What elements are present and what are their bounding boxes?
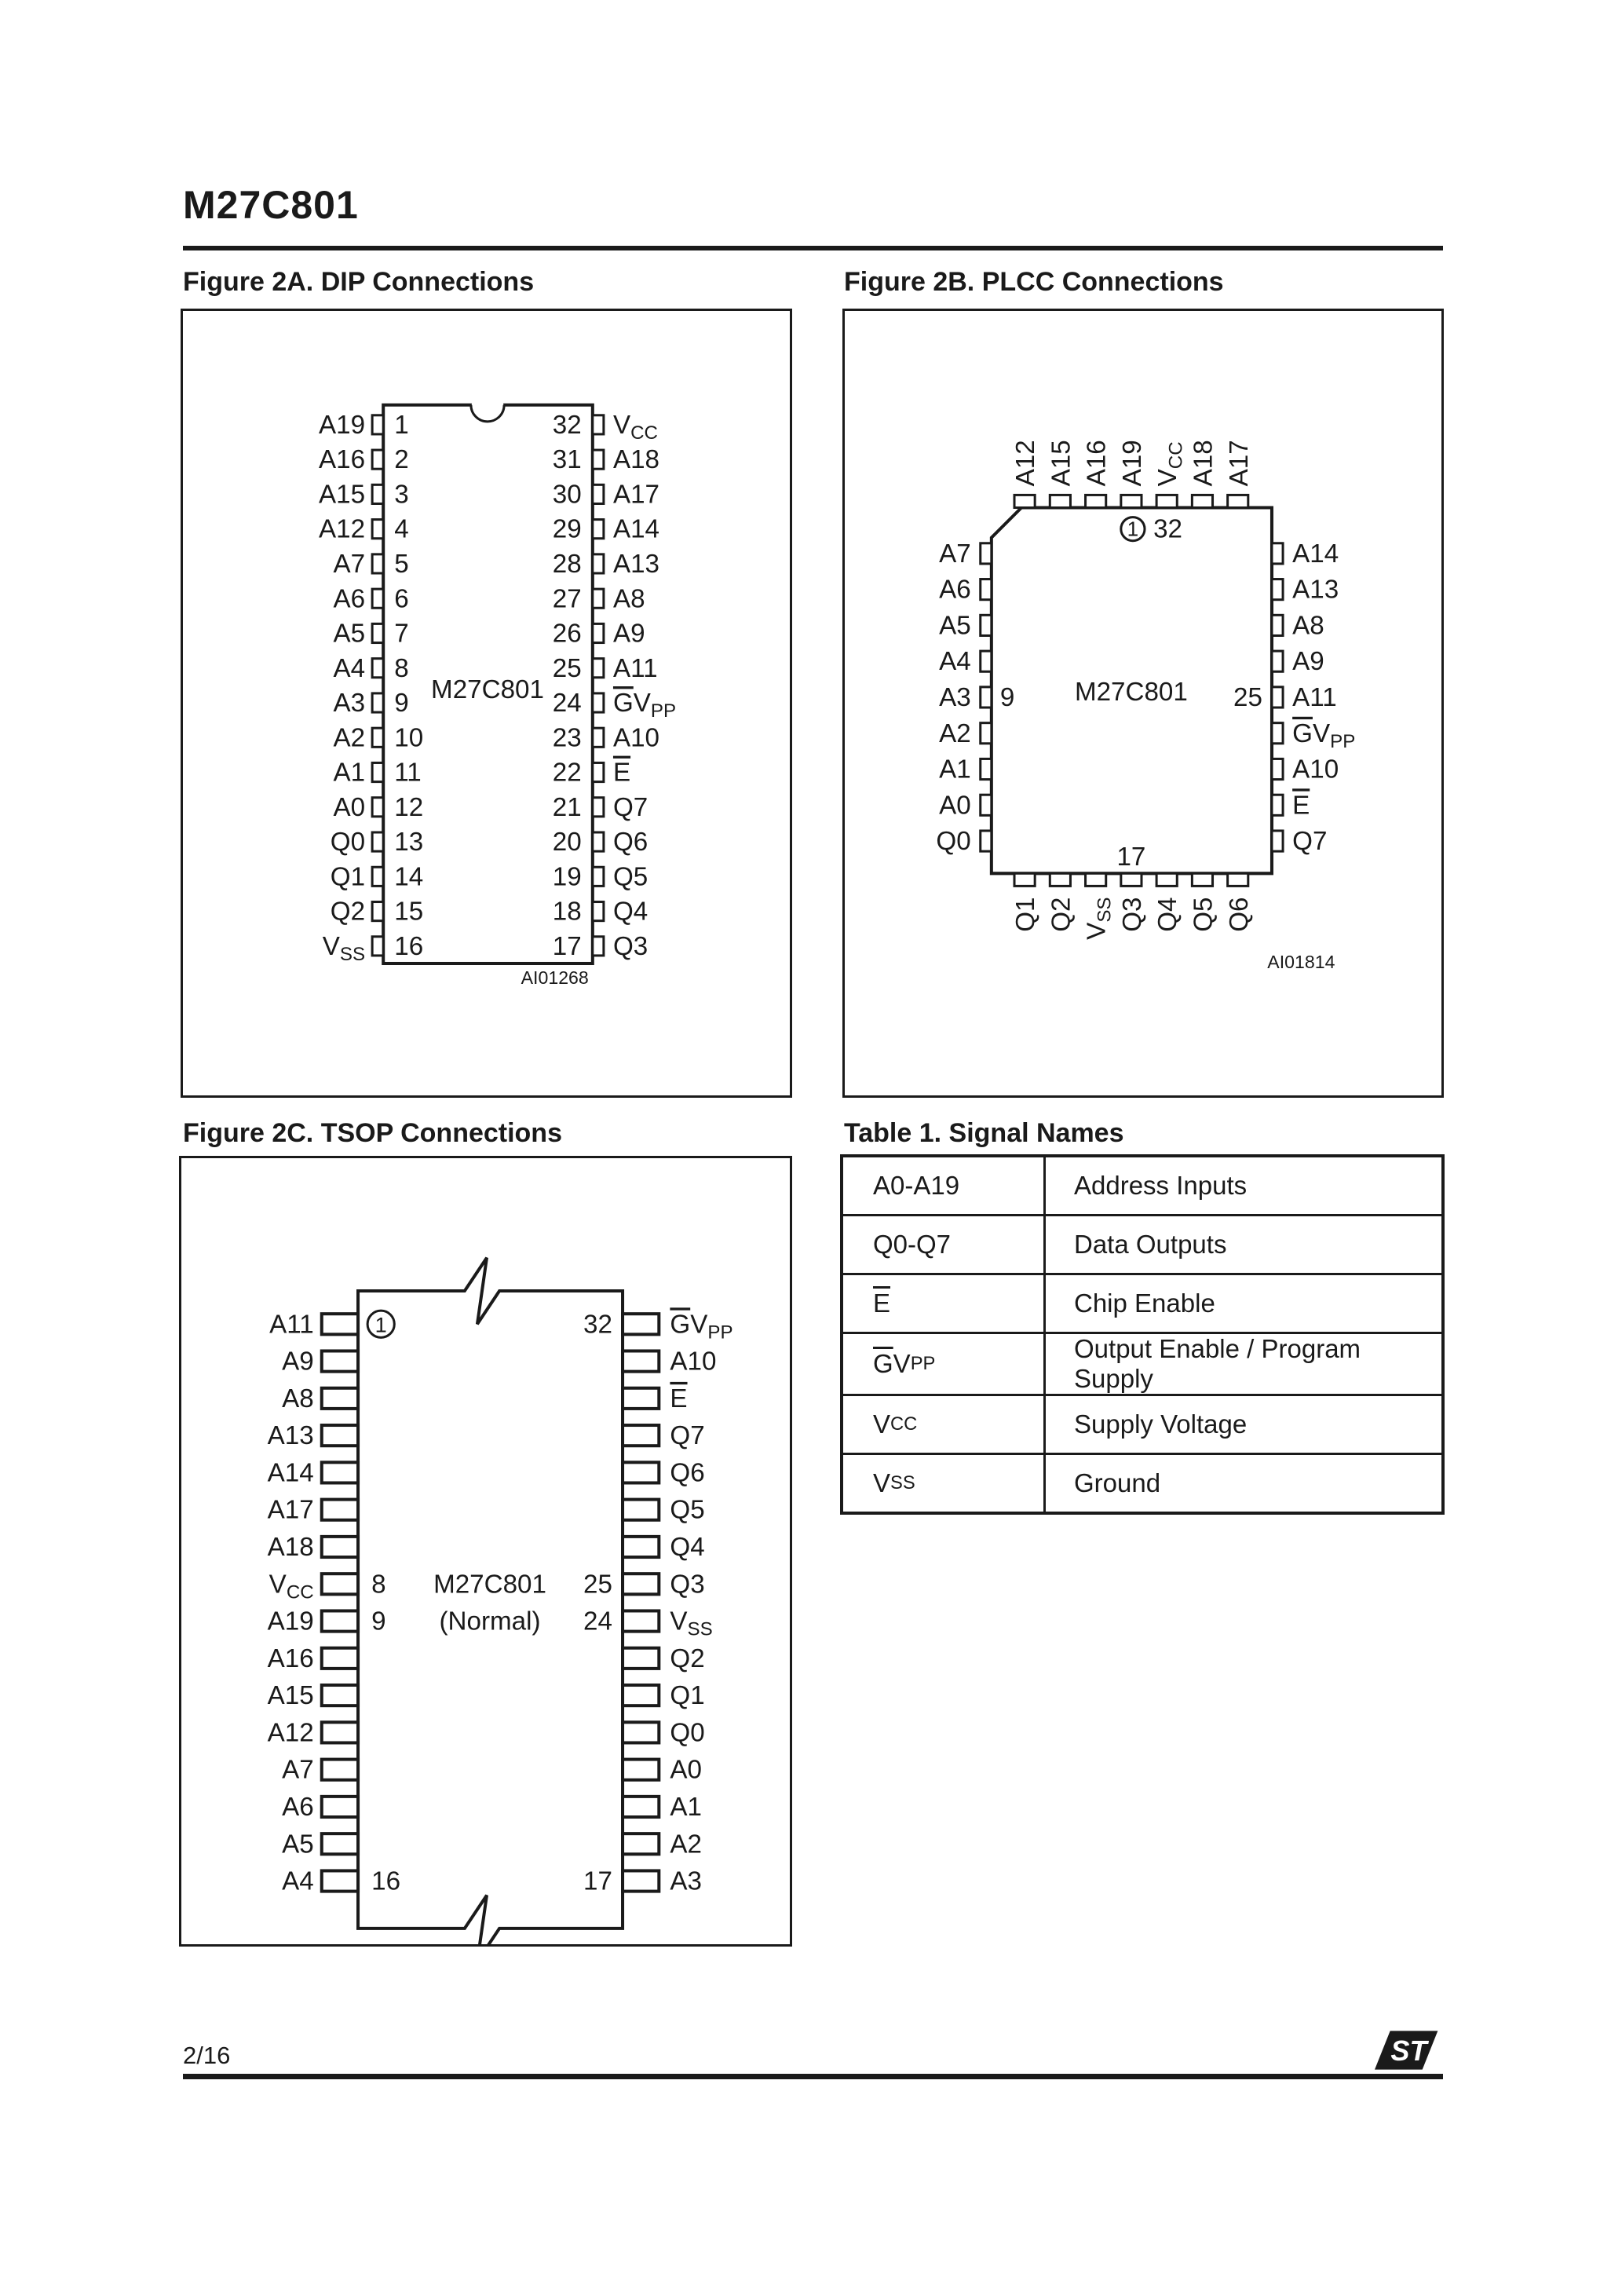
label-part: Q4 xyxy=(1153,897,1182,931)
pin-stub-icon xyxy=(981,651,992,671)
pin-label: Q7 xyxy=(670,1421,704,1450)
label-part: A18 xyxy=(613,445,659,474)
label-part: 25 xyxy=(553,654,582,683)
pin-stub-icon xyxy=(372,762,383,781)
pin-stub-icon xyxy=(1272,579,1283,600)
label-part: 24 xyxy=(583,1607,612,1636)
pin-stub-icon xyxy=(593,450,604,469)
label-part: 8 xyxy=(394,654,408,683)
figure-2b-title: Figure 2B. PLCC Connections xyxy=(844,267,1224,298)
pin-label: Q2 xyxy=(331,898,365,927)
label-part: V xyxy=(634,689,651,718)
label-part: 14 xyxy=(394,862,423,891)
header-rule xyxy=(183,246,1443,250)
pin-stub-icon xyxy=(1272,543,1283,564)
st-logo-text: ST xyxy=(1390,2035,1429,2067)
pin-stub-icon xyxy=(322,1388,358,1409)
label-part: 7 xyxy=(394,620,408,649)
pin-label: A14 xyxy=(268,1458,314,1487)
label-part: Q0 xyxy=(670,1718,704,1747)
pin-stub-icon xyxy=(1050,495,1070,507)
label-part: A5 xyxy=(333,620,365,649)
label-part: A2 xyxy=(333,723,365,752)
signal-description-cell: Address Inputs xyxy=(1046,1157,1441,1214)
pin-stub-icon xyxy=(593,659,604,678)
label-part: Q4 xyxy=(613,898,648,927)
label-part: A12 xyxy=(268,1718,314,1747)
label-part: A3 xyxy=(670,1867,702,1896)
pin-number: 25 xyxy=(1233,683,1262,712)
label-part: A12 xyxy=(1011,440,1040,486)
label-part: 28 xyxy=(553,550,582,579)
pin-label: Q6 xyxy=(613,828,648,857)
pin-number: 32 xyxy=(553,411,582,440)
plcc-diagram: A12A15A16A19VCCA18A17Q1Q2VSSQ3Q4Q5Q6A7A6… xyxy=(845,311,1441,1095)
pin-number: 27 xyxy=(553,584,582,613)
label-part: V xyxy=(1313,719,1330,748)
label-part: A19 xyxy=(1118,440,1147,486)
pin-label: A9 xyxy=(282,1347,314,1377)
pin-number: 17 xyxy=(553,932,582,961)
pin-label: A2 xyxy=(670,1830,702,1859)
label-part: 27 xyxy=(553,584,582,613)
label-part: A16 xyxy=(268,1644,314,1673)
pin-stub-icon xyxy=(372,867,383,886)
label-part: Q1 xyxy=(670,1681,704,1710)
pin-label: A8 xyxy=(282,1384,314,1413)
pin-label: A11 xyxy=(269,1310,314,1339)
figure-2c-box: A11A9A8A13A14A17A18VCCA19A16A15A12A7A6A5… xyxy=(179,1156,792,1947)
pin-number: 10 xyxy=(394,723,423,752)
pin-stub-icon xyxy=(593,867,604,886)
label-part: A17 xyxy=(613,480,659,509)
pin-number: 30 xyxy=(553,480,582,509)
label-part: 16 xyxy=(394,932,423,961)
pin-number: 17 xyxy=(1116,843,1145,872)
pin-number: 25 xyxy=(583,1570,612,1599)
label-part: SS xyxy=(340,944,365,965)
label-part: Q6 xyxy=(1225,897,1254,931)
label-part: A11 xyxy=(269,1310,314,1339)
pin-stub-icon xyxy=(1272,759,1283,779)
pin-label: Q1 xyxy=(331,862,365,891)
label-part: A15 xyxy=(1047,440,1076,486)
pin-number: 13 xyxy=(394,828,423,857)
label-part: 24 xyxy=(553,689,582,718)
pin-label: GVPP xyxy=(613,689,676,722)
pin-stub-icon xyxy=(372,659,383,678)
pin-label: A17 xyxy=(268,1496,314,1525)
pin-label: A13 xyxy=(268,1421,314,1450)
pin-stub-icon xyxy=(1156,873,1177,886)
label-part: V xyxy=(1083,923,1112,940)
label-part: M27C801 xyxy=(1075,678,1188,707)
label-part: A10 xyxy=(613,723,659,752)
label-part: V xyxy=(690,1310,707,1339)
label-part: A5 xyxy=(939,611,971,640)
label-part: Q3 xyxy=(670,1570,704,1599)
pin-label: VCC xyxy=(613,411,658,444)
st-logo: ST xyxy=(1375,2028,1439,2072)
chip-body xyxy=(358,1258,623,1944)
label-part: E xyxy=(613,759,630,788)
pin-label: Q0 xyxy=(936,827,970,856)
label-part: A9 xyxy=(613,620,645,649)
pin-number: 16 xyxy=(394,932,423,961)
label-part: A13 xyxy=(268,1421,314,1450)
pin-label: A15 xyxy=(319,480,365,509)
chip-label: M27C801 xyxy=(431,675,544,704)
label-part: Q0 xyxy=(936,827,970,856)
pin-label: A11 xyxy=(1292,683,1337,712)
pin-stub-icon xyxy=(322,1351,358,1371)
pin-number: 31 xyxy=(553,445,582,474)
pin-stub-icon xyxy=(322,1648,358,1669)
label-part: 11 xyxy=(394,759,421,788)
label-part: 32 xyxy=(553,411,582,440)
label-part: A8 xyxy=(613,584,645,613)
pin-stub-icon xyxy=(1121,873,1142,886)
datasheet-page: { "page": { "title": "M27C801", "page_nu… xyxy=(0,0,1622,2296)
pin-number: 17 xyxy=(583,1867,612,1896)
label-part: AI01814 xyxy=(1267,952,1335,972)
pin-number: 4 xyxy=(394,515,408,544)
table-row: Q0-Q7Data Outputs xyxy=(843,1214,1441,1273)
label-part: A16 xyxy=(319,445,365,474)
pin-stub-icon xyxy=(1156,495,1177,507)
label-part: 3 xyxy=(394,480,408,509)
pin-label: Q5 xyxy=(613,862,648,891)
signal-description-cell: Ground xyxy=(1046,1455,1441,1512)
signal-description-cell: Data Outputs xyxy=(1046,1216,1441,1273)
pin-number: 2 xyxy=(394,445,408,474)
pin-label: GVPP xyxy=(670,1310,732,1343)
label-part: V xyxy=(323,932,340,961)
pin-number: 24 xyxy=(553,689,582,718)
pin-label: Q5 xyxy=(1189,897,1218,931)
label-part: A8 xyxy=(282,1384,314,1413)
pin-number: 18 xyxy=(553,898,582,927)
pin-stub-icon xyxy=(593,415,604,434)
page-title: M27C801 xyxy=(183,182,359,228)
pin-label: Q0 xyxy=(331,828,365,857)
footer-rule xyxy=(183,2074,1443,2079)
pin-number: 12 xyxy=(394,793,423,822)
label-part: A14 xyxy=(268,1458,314,1487)
label-part: Q3 xyxy=(1118,897,1147,931)
label-part: A18 xyxy=(268,1533,314,1562)
pin-stub-icon xyxy=(593,728,604,747)
pin-number: 22 xyxy=(553,759,582,788)
label-part: 17 xyxy=(553,932,582,961)
pin-label: A16 xyxy=(319,445,365,474)
label-part: A9 xyxy=(282,1347,314,1377)
pin-stub-icon xyxy=(981,723,992,744)
pin-stub-icon xyxy=(981,615,992,635)
label-part: A4 xyxy=(939,647,971,676)
pin-label: A2 xyxy=(939,719,971,748)
pin-number: 19 xyxy=(553,862,582,891)
pin-label: Q6 xyxy=(1225,897,1254,931)
label-part: Q1 xyxy=(331,862,365,891)
pin-stub-icon xyxy=(1192,873,1212,886)
pin-number: 8 xyxy=(371,1570,385,1599)
pin-stub-icon xyxy=(322,1722,358,1742)
pin-label: A15 xyxy=(1047,440,1076,486)
pin-label: VSS xyxy=(670,1607,712,1640)
label-part: Q2 xyxy=(670,1644,704,1673)
pin-stub-icon xyxy=(322,1870,358,1891)
pin-label: A4 xyxy=(282,1867,314,1896)
label-part: A6 xyxy=(333,584,365,613)
label-part: E xyxy=(1292,791,1310,820)
label-part: G xyxy=(670,1310,690,1339)
pin-number: 5 xyxy=(394,550,408,579)
label-part: A4 xyxy=(333,654,365,683)
pin-label: E xyxy=(613,759,630,788)
label-part: 26 xyxy=(553,620,582,649)
pin-stub-icon xyxy=(372,554,383,573)
chip-label: M27C801 xyxy=(433,1570,546,1599)
pin-label: A8 xyxy=(1292,611,1324,640)
pin-stub-icon xyxy=(372,937,383,956)
pin-stub-icon xyxy=(593,623,604,642)
pin-stub-icon xyxy=(372,798,383,817)
label-part: 20 xyxy=(553,828,582,857)
dip-diagram: A191A162A153A124A75A66A57A48A39A210A111A… xyxy=(183,311,790,1095)
pin-label: A16 xyxy=(268,1644,314,1673)
label-part: 9 xyxy=(394,689,408,718)
pin-stub-icon xyxy=(322,1314,358,1334)
pin-stub-icon xyxy=(322,1834,358,1854)
label-part: A1 xyxy=(333,759,365,788)
pin-number: 26 xyxy=(553,620,582,649)
signal-name-cell: GVPP xyxy=(843,1334,1046,1394)
pin-label: A12 xyxy=(319,515,365,544)
pin-number: 32 xyxy=(583,1310,612,1339)
pin-label: A5 xyxy=(333,620,365,649)
label-part: 5 xyxy=(394,550,408,579)
label-part: 19 xyxy=(553,862,582,891)
label-part: A3 xyxy=(333,689,365,718)
signal-description-cell: Chip Enable xyxy=(1046,1275,1441,1332)
pin-label: A1 xyxy=(939,755,971,784)
label-part: A15 xyxy=(319,480,365,509)
label-part: A17 xyxy=(1225,440,1254,486)
pin-number: 32 xyxy=(1153,515,1182,544)
label-part: A7 xyxy=(939,539,971,569)
label-part: PP xyxy=(1330,731,1355,752)
pin-label: Q5 xyxy=(670,1496,704,1525)
pin-stub-icon xyxy=(593,832,604,851)
pin-stub-icon xyxy=(623,1834,659,1854)
pin-number: 28 xyxy=(553,550,582,579)
pin-stub-icon xyxy=(1272,651,1283,671)
label-part: A6 xyxy=(282,1793,314,1822)
pin-stub-icon xyxy=(322,1537,358,1557)
pin-label: Q2 xyxy=(670,1644,704,1673)
pin-stub-icon xyxy=(981,831,992,851)
pin-stub-icon xyxy=(1272,723,1283,744)
label-part: AI01268 xyxy=(521,967,589,988)
pin-label: A14 xyxy=(613,515,659,544)
label-part: 2 xyxy=(394,445,408,474)
label-part: CC xyxy=(630,422,658,444)
pin-label: A17 xyxy=(613,480,659,509)
pin-label: A3 xyxy=(670,1867,702,1896)
table-1-title: Table 1. Signal Names xyxy=(844,1118,1124,1149)
label-part: 1 xyxy=(394,411,408,440)
label-part: A2 xyxy=(939,719,971,748)
pin-stub-icon xyxy=(623,1648,659,1669)
pin-label: A19 xyxy=(1118,440,1147,486)
label-part: A11 xyxy=(613,654,658,683)
label-part: A8 xyxy=(1292,611,1324,640)
pin-label: VCC xyxy=(1153,441,1186,486)
pin-label: A14 xyxy=(1292,539,1339,569)
label-part: A10 xyxy=(670,1347,716,1377)
label-part: A3 xyxy=(939,683,971,712)
label-part: G xyxy=(613,689,634,718)
pin-stub-icon xyxy=(1228,495,1248,507)
pin-number: 24 xyxy=(583,1607,612,1636)
pin-label: A9 xyxy=(1292,647,1324,676)
pin-label: A4 xyxy=(939,647,971,676)
table-row: EChip Enable xyxy=(843,1273,1441,1332)
pin-label: Q7 xyxy=(1292,827,1327,856)
pin-stub-icon xyxy=(372,693,383,712)
label-part: 21 xyxy=(553,793,582,822)
pin-label: A6 xyxy=(282,1793,314,1822)
pin-stub-icon xyxy=(1014,495,1035,507)
pin-stub-icon xyxy=(623,1314,659,1334)
page-number: 2/16 xyxy=(183,2042,230,2070)
label-part: A1 xyxy=(939,755,971,784)
label-part: Q6 xyxy=(670,1458,704,1487)
pin-stub-icon xyxy=(623,1351,659,1371)
label-part: A4 xyxy=(282,1867,314,1896)
pin-stub-icon xyxy=(322,1425,358,1446)
pin-label: A18 xyxy=(268,1533,314,1562)
pin-label: A15 xyxy=(268,1681,314,1710)
pin-stub-icon xyxy=(1192,495,1212,507)
pin-label: A7 xyxy=(333,550,365,579)
figure-2c-title: Figure 2C. TSOP Connections xyxy=(183,1118,562,1149)
pin-stub-icon xyxy=(372,728,383,747)
tsop-diagram: A11A9A8A13A14A17A18VCCA19A16A15A12A7A6A5… xyxy=(181,1158,790,1944)
pin-label: Q3 xyxy=(613,932,648,961)
label-part: A17 xyxy=(268,1496,314,1525)
pin-stub-icon xyxy=(623,1500,659,1520)
label-part: Q1 xyxy=(1011,897,1040,931)
table-row: A0-A19Address Inputs xyxy=(843,1157,1441,1214)
pin-stub-icon xyxy=(372,902,383,921)
table-row: VSSGround xyxy=(843,1453,1441,1512)
pin-stub-icon xyxy=(981,795,992,815)
label-part: Q3 xyxy=(613,932,648,961)
pin-stub-icon xyxy=(372,623,383,642)
label-part: 8 xyxy=(371,1570,385,1599)
pin-stub-icon xyxy=(322,1610,358,1631)
label-part: A16 xyxy=(1083,440,1112,486)
pin-stub-icon xyxy=(1228,873,1248,886)
pin-label: A11 xyxy=(613,654,658,683)
pin-stub-icon xyxy=(322,1462,358,1483)
pin-stub-icon xyxy=(322,1500,358,1520)
figure-caption: AI01814 xyxy=(1267,952,1335,972)
label-part: A0 xyxy=(333,793,365,822)
pin-stub-icon xyxy=(623,1610,659,1631)
label-part: 22 xyxy=(553,759,582,788)
pin-label: A10 xyxy=(613,723,659,752)
signal-name-cell: A0-A19 xyxy=(843,1157,1046,1214)
pin-number: 14 xyxy=(394,862,423,891)
pin1-marker: 1 xyxy=(1127,517,1139,541)
pin-label: Q1 xyxy=(670,1681,704,1710)
label-part: V xyxy=(269,1570,287,1599)
pin-label: VSS xyxy=(1083,897,1116,939)
label-part: M27C801 xyxy=(433,1570,546,1599)
pin-label: A6 xyxy=(939,576,971,605)
pin-label: A1 xyxy=(333,759,365,788)
signal-description-cell: Supply Voltage xyxy=(1046,1396,1441,1453)
pin-stub-icon xyxy=(322,1685,358,1706)
pin-label: A17 xyxy=(1225,440,1254,486)
label-part: 9 xyxy=(1000,683,1014,712)
label-part: E xyxy=(670,1384,687,1413)
label-part: 25 xyxy=(1233,683,1262,712)
pin-stub-icon xyxy=(322,1797,358,1817)
label-part: 15 xyxy=(394,898,423,927)
label-part: 16 xyxy=(371,1867,400,1896)
label-part: Q7 xyxy=(670,1421,704,1450)
pin-label: A12 xyxy=(1011,440,1040,486)
label-part: 13 xyxy=(394,828,423,857)
label-part: V xyxy=(1153,469,1182,486)
label-part: A10 xyxy=(1292,755,1339,784)
label-part: 18 xyxy=(553,898,582,927)
pin-number: 21 xyxy=(553,793,582,822)
label-part: Q4 xyxy=(670,1533,704,1562)
label-part: A12 xyxy=(319,515,365,544)
label-part: Q5 xyxy=(613,862,648,891)
pin-stub-icon xyxy=(1272,831,1283,851)
label-part: A9 xyxy=(1292,647,1324,676)
signal-name-cell: Q0-Q7 xyxy=(843,1216,1046,1273)
pin-stub-icon xyxy=(593,554,604,573)
pin-label: A7 xyxy=(282,1756,314,1785)
label-part: (Normal) xyxy=(440,1607,541,1636)
label-part: 4 xyxy=(394,515,408,544)
pin-stub-icon xyxy=(372,589,383,608)
pin-label: A7 xyxy=(939,539,971,569)
label-part: M27C801 xyxy=(431,675,544,704)
label-part: Q7 xyxy=(613,793,648,822)
chip-label-mode: (Normal) xyxy=(440,1607,541,1636)
label-part: Q6 xyxy=(613,828,648,857)
label-part: A1 xyxy=(670,1793,702,1822)
pin-label: E xyxy=(1292,791,1310,820)
label-part: 10 xyxy=(394,723,423,752)
figure-2a-box: A191A162A153A124A75A66A57A48A39A210A111A… xyxy=(181,309,792,1098)
pin-stub-icon xyxy=(623,1388,659,1409)
label-part: 32 xyxy=(1153,515,1182,544)
pin-stub-icon xyxy=(623,1537,659,1557)
label-part: 32 xyxy=(583,1310,612,1339)
pin-label: Q7 xyxy=(613,793,648,822)
pin-label: A9 xyxy=(613,620,645,649)
pin-label: A0 xyxy=(939,791,971,820)
